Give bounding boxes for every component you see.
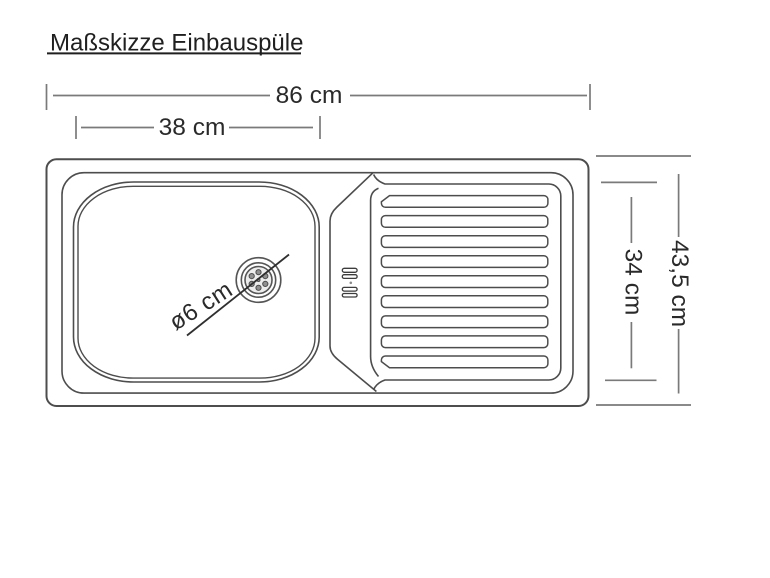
svg-text:ø6 cm: ø6 cm (164, 276, 237, 336)
svg-text:43,5 cm: 43,5 cm (666, 240, 693, 327)
svg-text:34 cm: 34 cm (620, 249, 647, 316)
svg-text:38 cm: 38 cm (159, 114, 226, 141)
svg-text:Maßskizze Einbauspüle: Maßskizze Einbauspüle (50, 29, 303, 56)
svg-text:86 cm: 86 cm (276, 82, 343, 109)
